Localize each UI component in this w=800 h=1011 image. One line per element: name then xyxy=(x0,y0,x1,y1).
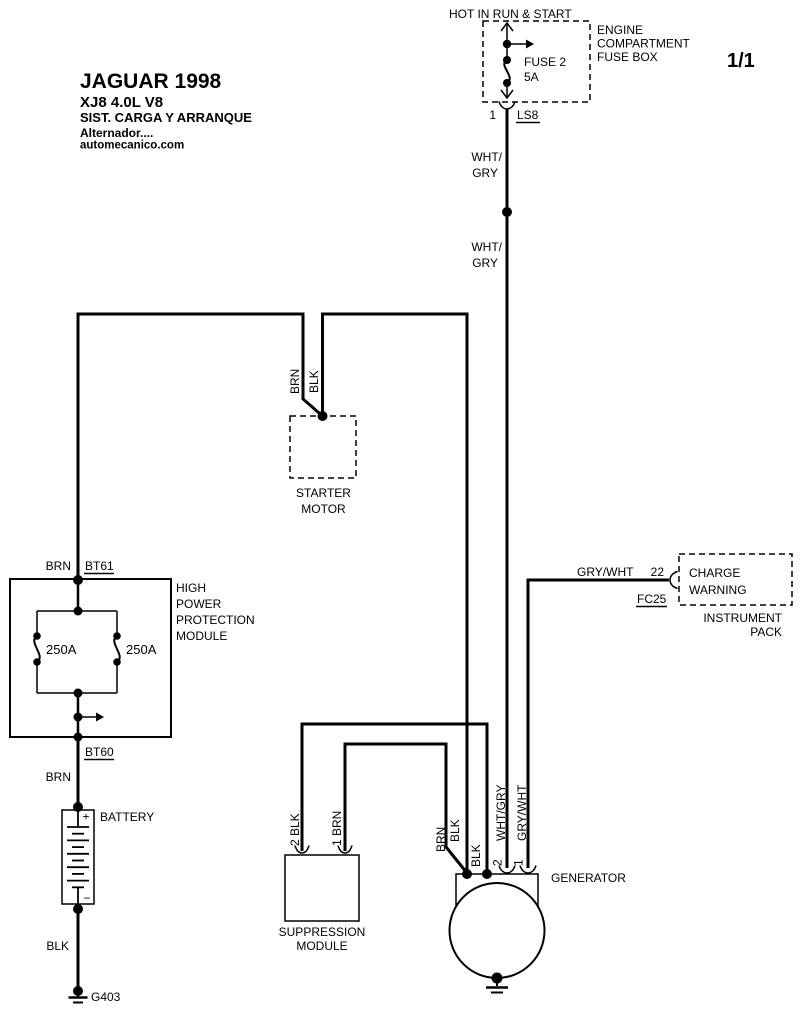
ground-id: G403 xyxy=(91,990,121,1004)
fuse-box-name-line3: FUSE BOX xyxy=(597,50,658,64)
connector-id: BT61 xyxy=(85,559,114,573)
title-system: SIST. CARGA Y ARRANQUE xyxy=(80,110,252,125)
pin-wire-label: WHT/GRY xyxy=(494,785,508,841)
fuse-box-pin-number: 1 xyxy=(489,108,496,122)
wire-color-label: BRN xyxy=(46,770,71,784)
fuse-end-dot xyxy=(113,658,121,666)
fuse-label: FUSE 2 xyxy=(524,55,566,69)
fuse-end-dot xyxy=(33,632,41,640)
battery-plates-icon xyxy=(67,810,89,904)
starter-motor-label-line1: STARTER xyxy=(296,486,351,500)
wire-color-label: BLK xyxy=(469,844,483,867)
fuse-box-connector-id: LS8 xyxy=(517,108,539,122)
junction-dot xyxy=(482,869,492,879)
junction-dot xyxy=(318,411,328,421)
connector-id: FC25 xyxy=(637,592,667,606)
pin-number: 22 xyxy=(651,565,665,579)
wire-color-label: GRY/WHT xyxy=(577,565,634,579)
splice-dot xyxy=(502,207,512,217)
wire-color-label: WHT/ xyxy=(471,150,502,164)
wire-blk-suppression-to-generator xyxy=(302,724,487,873)
title-website: automecanico.com xyxy=(80,140,184,152)
battery-minus-sign: − xyxy=(84,891,91,905)
junction-dot xyxy=(74,607,83,616)
fuse-end-dot xyxy=(503,79,511,87)
fuse-box-name-line1: ENGINE xyxy=(597,23,643,37)
battery-label: BATTERY xyxy=(100,810,154,824)
fuse-end-dot xyxy=(113,632,121,640)
wire-brn-suppression-to-generator xyxy=(345,744,467,873)
fuse-icon xyxy=(114,636,119,662)
pin-wire-label: GRY/WHT xyxy=(515,784,529,841)
fuse-box-name-line2: COMPARTMENT xyxy=(597,37,691,51)
fuse-end-dot xyxy=(33,658,41,666)
wiring-diagram: HOT IN RUN & START ENGINE COMPARTMENT FU… xyxy=(0,0,800,1011)
wire-brn-module-to-starter xyxy=(78,314,323,580)
engine-compartment-fuse-box: HOT IN RUN & START ENGINE COMPARTMENT FU… xyxy=(449,7,755,123)
wire-color-label: BRN xyxy=(288,369,302,394)
junction-dot xyxy=(503,40,511,48)
charge-warning-label-line1: CHARGE xyxy=(689,566,740,580)
high-power-protection-module: BRN BT61 250A 250A BT60 HIGH POWER PROTE… xyxy=(10,559,255,760)
module-name-line4: MODULE xyxy=(176,629,227,643)
battery: BRN + − BATTERY BLK G403 xyxy=(46,770,155,1004)
instrument-pack: GRY/WHT 22 FC25 CHARGE WARNING INSTRUMEN… xyxy=(577,554,792,639)
title-subsystem: Alternador.... xyxy=(80,126,153,140)
connector-socket-icon xyxy=(670,572,678,589)
suppression-module: 2 BLK 1 BRN SUPPRESSION MODULE xyxy=(279,811,366,953)
title-model: XJ8 4.0L V8 xyxy=(80,94,163,111)
generator: BRN BLK BLK WHT/GRY 2 GRY/WHT 1 GENERATO… xyxy=(434,784,626,993)
module-name-line2: POWER xyxy=(176,597,222,611)
pin-number: 2 xyxy=(491,859,505,866)
wire-gry-wht-instrument xyxy=(528,580,669,868)
connector-id: BT60 xyxy=(85,745,114,759)
junction-dot xyxy=(74,733,83,742)
wire-color-label: BRN xyxy=(46,559,71,573)
wire-color-label: GRY xyxy=(472,166,498,180)
wire-color-label: GRY xyxy=(472,256,498,270)
pin-wire-label: 1 BRN xyxy=(330,811,344,846)
fuse-rating: 250A xyxy=(46,642,77,657)
junction-dot xyxy=(73,904,83,914)
battery-plus-sign: + xyxy=(83,810,90,824)
wire-color-label: BLK xyxy=(307,370,321,393)
page-indicator: 1/1 xyxy=(727,50,755,72)
junction-dot xyxy=(74,689,83,698)
wire-color-label: WHT/ xyxy=(471,240,502,254)
wire-color-label: BLK xyxy=(46,939,69,953)
fuse-icon xyxy=(34,636,39,662)
fuse-rating: 5A xyxy=(524,70,539,84)
title-vehicle: JAGUAR 1998 xyxy=(80,70,222,93)
protection-module-outline xyxy=(10,579,171,737)
module-name-line3: PROTECTION xyxy=(176,613,255,627)
starter-motor-outline xyxy=(290,416,356,478)
suppression-module-label-line1: SUPPRESSION xyxy=(279,925,366,939)
starter-motor-label-line2: MOTOR xyxy=(301,502,346,516)
junction-dot xyxy=(462,869,472,879)
fuse-rating: 250A xyxy=(126,642,157,657)
suppression-module-label-line2: MODULE xyxy=(296,939,347,953)
arrow-right-icon xyxy=(526,40,534,49)
charge-warning-label-line2: WARNING xyxy=(689,583,747,597)
pin-number: 1 xyxy=(512,859,526,866)
pin-wire-label: 2 BLK xyxy=(288,813,302,846)
module-name-line1: HIGH xyxy=(176,581,206,595)
wire-color-label: BRN xyxy=(434,827,448,852)
fuse-end-dot xyxy=(503,56,511,64)
wire-color-label: BLK xyxy=(448,819,462,842)
arrow-right-icon xyxy=(96,713,104,722)
ground-icon xyxy=(69,986,88,1003)
generator-body xyxy=(450,883,545,978)
instrument-pack-label-line1: INSTRUMENT xyxy=(703,611,782,625)
title-block: JAGUAR 1998 XJ8 4.0L V8 SIST. CARGA Y AR… xyxy=(80,70,252,152)
wires xyxy=(78,109,669,991)
generator-label: GENERATOR xyxy=(551,871,626,885)
suppression-module-outline xyxy=(285,855,359,921)
hot-feed-label: HOT IN RUN & START xyxy=(449,7,572,21)
wiring-diagram-page: HOT IN RUN & START ENGINE COMPARTMENT FU… xyxy=(0,0,800,1011)
instrument-pack-label-line2: PACK xyxy=(750,625,782,639)
